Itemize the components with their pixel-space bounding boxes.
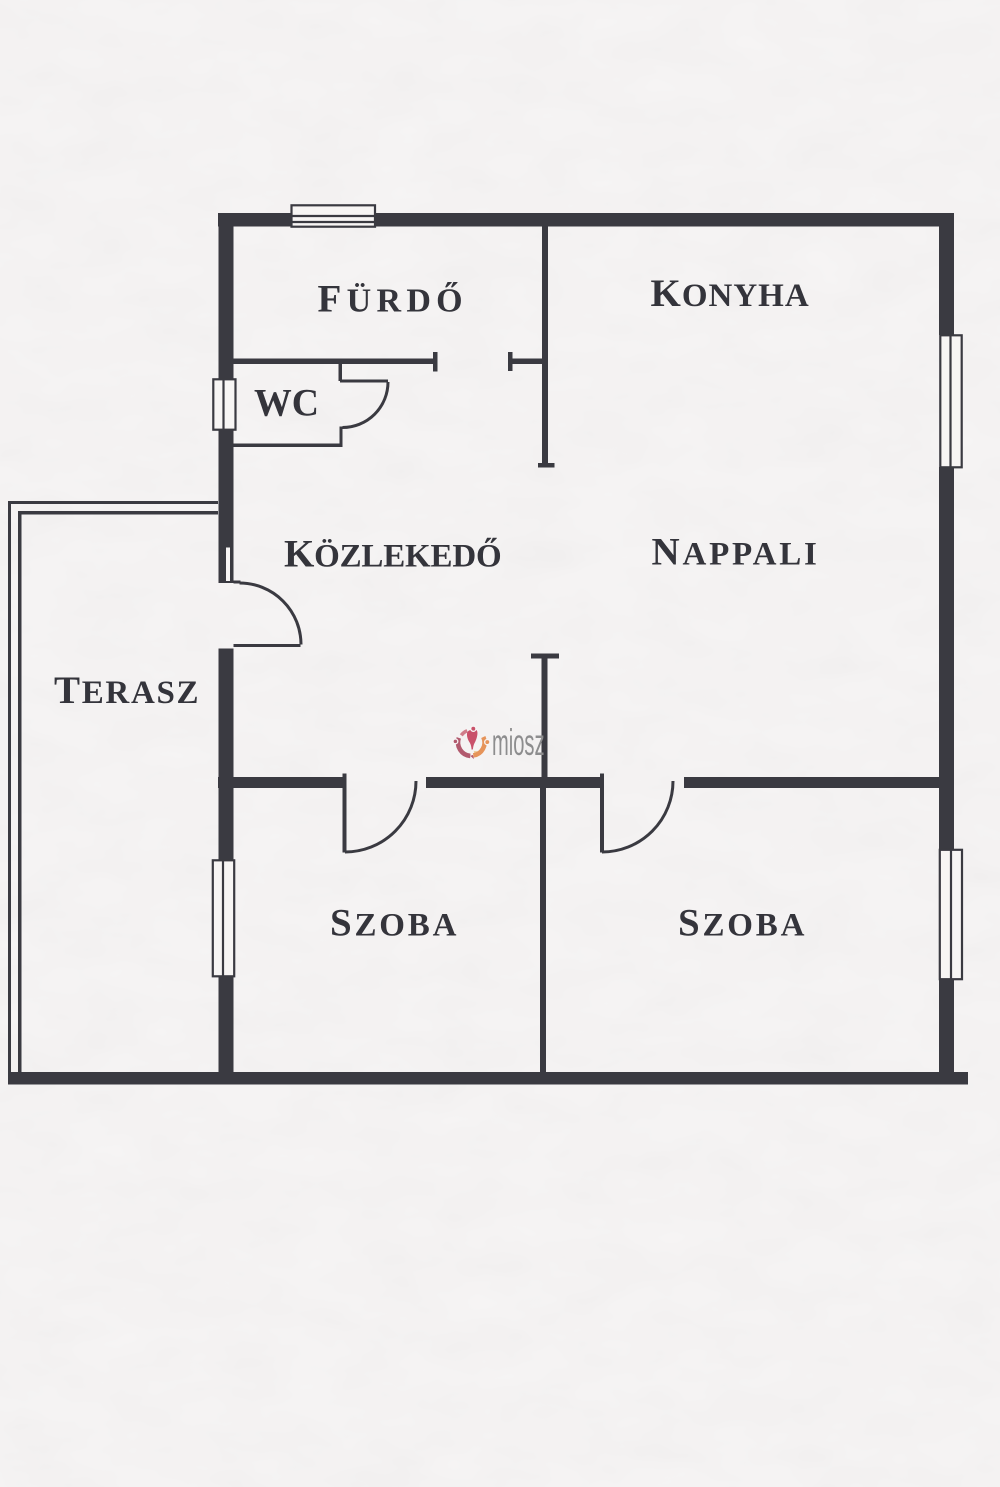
svg-text:SZOBA: SZOBA	[678, 902, 807, 945]
svg-text:WC: WC	[254, 381, 319, 424]
svg-text:KÖZLEKEDŐ: KÖZLEKEDŐ	[284, 532, 501, 575]
svg-text:FÜRDŐ: FÜRDŐ	[318, 278, 468, 321]
svg-text:TERASZ: TERASZ	[54, 669, 200, 712]
svg-text:miosz: miosz	[492, 722, 545, 763]
svg-text:KONYHA: KONYHA	[651, 272, 810, 315]
svg-text:NAPPALI: NAPPALI	[652, 531, 820, 574]
svg-text:SZOBA: SZOBA	[330, 901, 459, 944]
